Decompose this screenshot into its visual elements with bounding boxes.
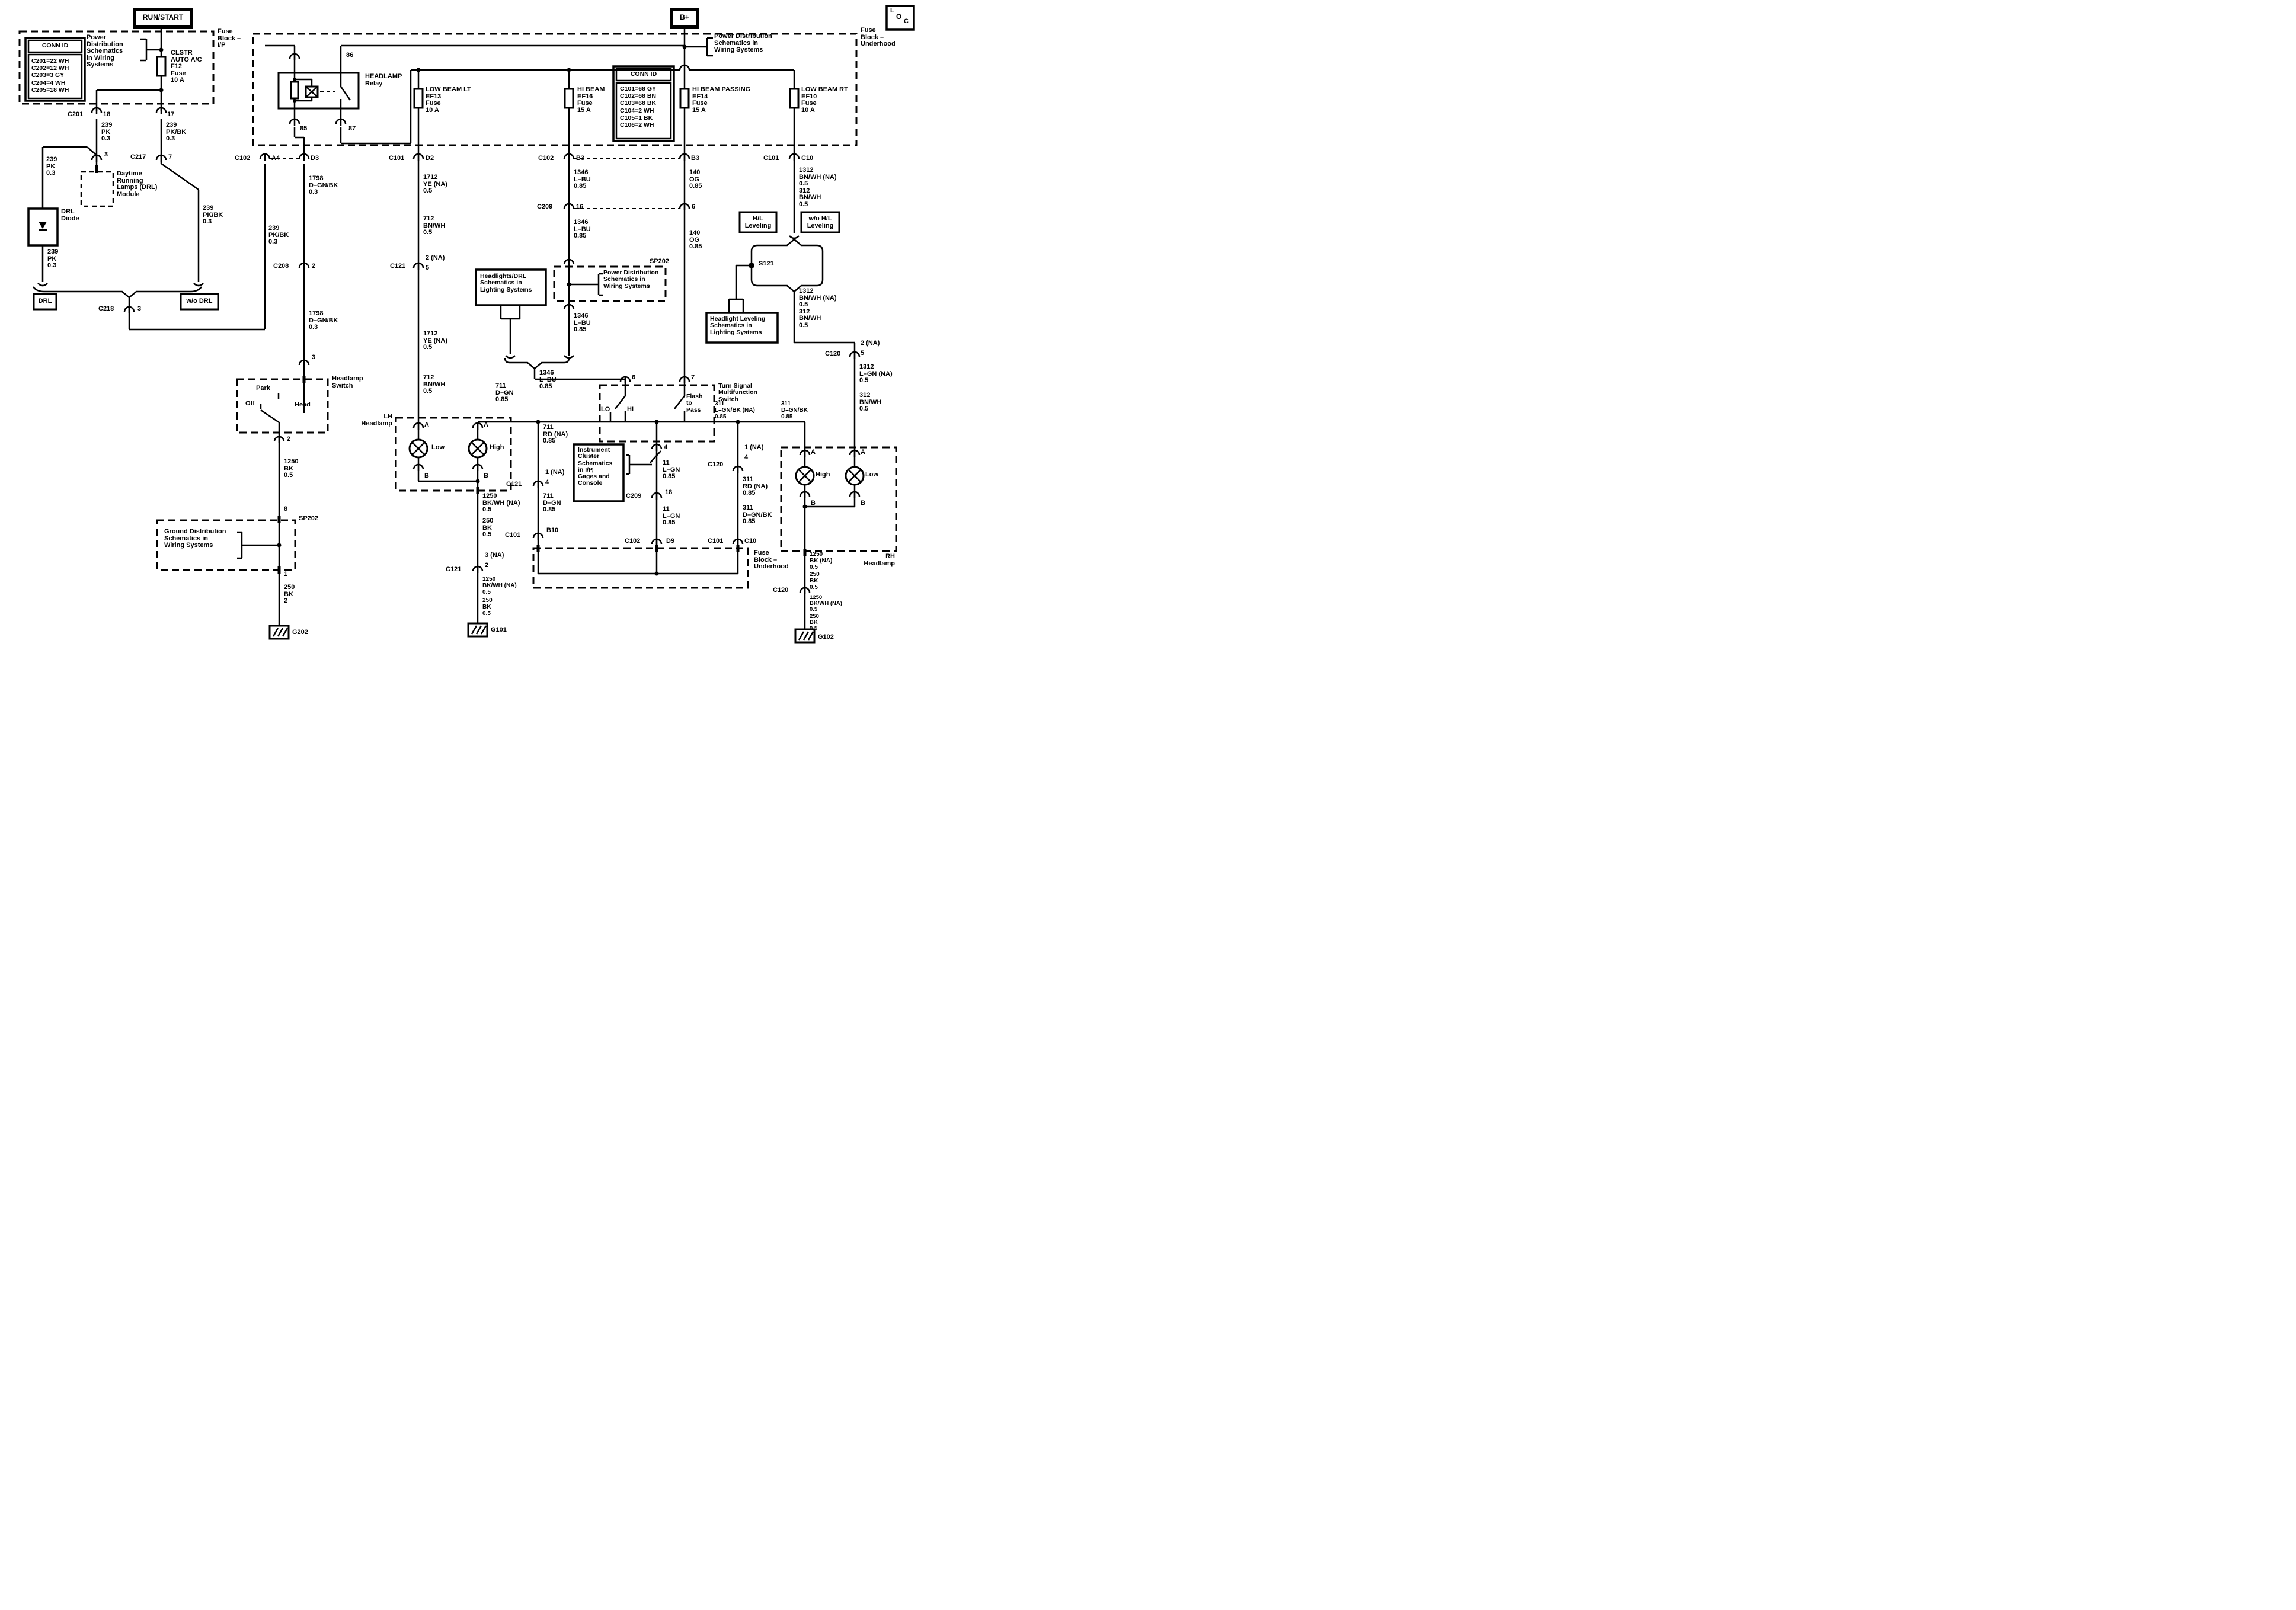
loc-letter-c: C <box>904 18 909 25</box>
wire-311-dgnbk-a: 311 D–GN/BK 0.85 <box>781 401 808 420</box>
wire-1346-d: 1346 L–BU 0.85 <box>539 370 557 391</box>
wire-250-bk-2: 250 BK 2 <box>284 584 295 605</box>
pin-c10-b: C10 <box>744 538 756 545</box>
pin-2na: 2 (NA) <box>426 255 445 262</box>
pin-a-rh-low: A <box>861 449 865 456</box>
junction-dot <box>736 420 740 424</box>
conn-c121-a: C121 <box>390 263 405 270</box>
junction-dot <box>476 479 480 484</box>
switch-flash-to-pass: Flash to Pass <box>686 393 702 414</box>
wire-1712-b: 1712 YE (NA) 0.5 <box>423 331 447 351</box>
pin-a-lh-high: A <box>484 422 488 429</box>
headlamp-switch-label: Headlamp Switch <box>332 376 363 389</box>
conn-c218: C218 <box>98 306 114 313</box>
pin-d9: D9 <box>666 538 674 545</box>
junction-dot <box>655 420 659 424</box>
wire-712-b: 712 BN/WH 0.5 <box>423 375 445 395</box>
conn-id-left-title: CONN ID <box>25 43 85 49</box>
pin-18: 18 <box>103 111 110 119</box>
pin-3b: 3 <box>137 306 141 313</box>
rh-high-label: High <box>816 472 830 479</box>
junction-dot <box>293 99 296 103</box>
conn-c209-a: C209 <box>537 204 552 211</box>
junction-dot <box>567 283 571 287</box>
switch-park: Park <box>256 385 270 392</box>
wo-drl-option-label: w/o DRL <box>181 298 218 305</box>
rh-headlamp-box <box>781 447 896 551</box>
wire-711-dgn-a: 711 D–GN 0.85 <box>495 383 514 404</box>
wire-1346-c: 1346 L–BU 0.85 <box>574 313 591 334</box>
pin-16: 16 <box>576 204 583 211</box>
wire-1346-a: 1346 L–BU 0.85 <box>574 169 591 190</box>
junction-dot <box>803 505 807 509</box>
pin-8: 8 <box>284 506 287 513</box>
wire-239-pkbk-c: 239 PK/BK 0.3 <box>268 225 289 246</box>
pin-2na2: 2 (NA) <box>861 340 880 347</box>
fuse-ef14 <box>680 89 689 108</box>
junction-dot <box>683 45 687 49</box>
conn-c120-c: C120 <box>773 587 788 594</box>
pin-d3: D3 <box>311 155 319 162</box>
pin-87: 87 <box>348 126 356 133</box>
splice-sp202-a: SP202 <box>299 516 318 523</box>
wire-1250-bkwh-c: 1250 BK/WH (NA) 0.5 <box>810 595 842 613</box>
loc-letter-l: L <box>890 8 894 15</box>
fuse-ef14-label: HI BEAM PASSING EF14 Fuse 15 A <box>692 87 750 114</box>
wire-1250-bkwh-b: 1250 BK/WH (NA) 0.5 <box>482 576 517 596</box>
clstr-fuse-label: CLSTR AUTO A/C F12 Fuse 10 A <box>171 50 202 84</box>
fuse-block-ip-label: Fuse Block – I/P <box>218 28 241 49</box>
wire-1312-lgn: 1312 L–GN (NA) 0.5 <box>859 364 893 385</box>
pin-b3-a: B3 <box>576 155 584 162</box>
drl-module-box-g <box>81 172 113 206</box>
wire-1250-bk: 1250 BK 0.5 <box>284 459 298 479</box>
s121-splice-dot <box>749 263 754 268</box>
pin-5: 5 <box>426 265 429 272</box>
conn-c121-c: C121 <box>446 566 461 574</box>
junction-dot <box>567 68 571 72</box>
conn-c208: C208 <box>273 263 289 270</box>
drl-module-box <box>81 172 113 206</box>
wire-1798-b: 1798 D–GN/BK 0.3 <box>309 311 338 331</box>
switch-hi: HI <box>627 406 634 414</box>
fuse-ef16 <box>565 89 573 108</box>
pin-2b: 2 <box>287 436 290 443</box>
pin-85: 85 <box>300 126 307 133</box>
pin-4c: 4 <box>545 479 549 486</box>
pin-a-rh-high: A <box>811 449 816 456</box>
wire-1712-a: 1712 YE (NA) 0.5 <box>423 174 447 195</box>
headlight-leveling-ref: Headlight Leveling Schematics in Lightin… <box>710 316 765 336</box>
pin-1na2: 1 (NA) <box>545 469 564 476</box>
wire-11-lgn-b: 11 L–GN 0.85 <box>663 506 680 527</box>
conn-c101-a: C101 <box>389 155 404 162</box>
instrument-cluster-ref: Instrument Cluster Schematics in I/P, Ga… <box>578 447 612 487</box>
pin-c10: C10 <box>801 155 813 162</box>
ground-hatch-set <box>273 626 813 640</box>
ground-g102: G102 <box>818 634 834 641</box>
junction-dot <box>655 572 659 576</box>
b-plus-label: B+ <box>671 14 698 21</box>
conn-c101-d: C101 <box>505 532 520 539</box>
pin-7b: 7 <box>691 375 695 382</box>
pin-3c: 3 <box>312 354 315 361</box>
pin-b-rh-low: B <box>861 500 865 507</box>
relay-coil-resistor <box>291 82 298 98</box>
pin-a4: A4 <box>271 155 280 162</box>
wire-239-pk-a: 239 PK 0.3 <box>101 122 112 143</box>
conn-id-right-rows: C101=68 GY C102=68 BN C103=68 BK C104=2 … <box>620 85 656 129</box>
fuse-ef13-label: LOW BEAM LT EF13 Fuse 10 A <box>426 87 471 114</box>
ground-g101: G101 <box>491 627 507 634</box>
pin-17: 17 <box>167 111 174 119</box>
conn-c120-b: C120 <box>825 351 840 358</box>
ground-symbols <box>270 623 814 642</box>
headlights-drl-ref: Headlights/DRL Schematics in Lighting Sy… <box>480 273 532 293</box>
fuse-clstr <box>157 57 165 76</box>
junction-dot <box>159 88 164 92</box>
pin-2c: 2 <box>485 562 488 569</box>
solid-boxes <box>25 6 914 501</box>
wire-711-rd: 711 RD (NA) 0.85 <box>543 424 568 445</box>
pin-2: 2 <box>312 263 315 270</box>
pin-1: 1 <box>284 571 287 578</box>
wire-712-a: 712 BN/WH 0.5 <box>423 216 445 236</box>
wire-250-bk-b: 250 BK 0.5 <box>482 597 493 617</box>
wire-250-bk-d: 250 BK 0.5 <box>810 614 819 632</box>
fuse-ef10 <box>790 89 798 108</box>
rh-headlamp-label: RH Headlamp <box>844 553 895 567</box>
fuse-block-underhood-bottom-label: Fuse Block – Underhood <box>754 550 789 571</box>
junction-dot <box>417 68 421 72</box>
wire-140-b: 140 OG 0.85 <box>689 230 702 251</box>
pin-b10: B10 <box>546 527 558 534</box>
junction-dot <box>536 420 541 424</box>
wire-711-dgn-b: 711 D–GN 0.85 <box>543 493 561 514</box>
loc-letter-o: O <box>896 13 901 21</box>
wo-hl-leveling-option-label: w/o H/L Leveling <box>801 216 839 229</box>
pin-6b: 6 <box>632 375 635 382</box>
wire-1250-bkna: 1250 BK (NA) 0.5 <box>810 551 832 571</box>
run-start-label: RUN/START <box>135 14 191 21</box>
junction-dot <box>293 78 296 81</box>
wiring-diagram-page: RUN/START B+ L O C Fuse Block – I/P Fuse… <box>0 0 918 648</box>
pin-3: 3 <box>104 152 108 159</box>
wire-311-rd: 311 RD (NA) 0.85 <box>743 476 768 497</box>
conn-c120-a: C120 <box>708 462 723 469</box>
junction-dot <box>159 48 164 52</box>
drl-option-label: DRL <box>34 298 56 305</box>
pin-4a: 4 <box>664 444 667 452</box>
power-dist-ref-sp202: Power Distribution Schematics in Wiring … <box>603 270 658 290</box>
wire-250-bk-a: 250 BK 0.5 <box>482 518 493 539</box>
lh-high-label: High <box>490 444 504 452</box>
lh-low-label: Low <box>431 444 445 452</box>
ground-hatches <box>273 626 813 640</box>
wire-239-pk-c: 239 PK 0.3 <box>47 249 58 270</box>
conn-id-right-title: CONN ID <box>616 71 671 78</box>
pin-6a: 6 <box>692 204 695 211</box>
turn-signal-switch-label: Turn Signal Multifunction Switch <box>718 383 757 403</box>
diode-symbol <box>39 222 47 230</box>
fuse-ef13 <box>414 89 423 108</box>
rh-low-label: Low <box>865 472 878 479</box>
conn-c102-a: C102 <box>235 155 250 162</box>
drl-diode-label: DRL Diode <box>61 209 79 222</box>
pin-d2: D2 <box>426 155 434 162</box>
wire-239-pkbk-a: 239 PK/BK 0.3 <box>166 122 186 143</box>
wire-239-pkbk-b: 239 PK/BK 0.3 <box>203 205 223 226</box>
wire-140-a: 140 OG 0.85 <box>689 169 702 190</box>
wire-250-bk-c: 250 BK 0.5 <box>810 571 820 591</box>
pin-3na: 3 (NA) <box>485 552 504 559</box>
pin-18b: 18 <box>665 489 672 497</box>
wire-1312-b: 1312 BN/WH (NA) 0.5 312 BN/WH 0.5 <box>799 288 837 329</box>
pin-1na: 1 (NA) <box>744 444 763 452</box>
edge-stub-set <box>97 165 805 574</box>
switch-lo: LO <box>601 406 610 414</box>
conn-id-left-rows: C201=22 WH C202=12 WH C203=3 GY C204=4 W… <box>31 57 69 94</box>
power-dist-ref-ip: Power Distribution Schematics in Wiring … <box>87 34 123 69</box>
switch-off: Off <box>245 401 255 408</box>
junction-dot <box>277 543 282 548</box>
wire-1798-a: 1798 D–GN/BK 0.3 <box>309 175 338 196</box>
fuse-ef10-label: LOW BEAM RT EF10 Fuse 10 A <box>801 87 848 114</box>
splice-s121: S121 <box>759 261 774 268</box>
wire-1250-bkwh-a: 1250 BK/WH (NA) 0.5 <box>482 493 520 514</box>
diode-triangle <box>39 222 47 229</box>
fuse-block-underhood-top-label: Fuse Block – Underhood <box>861 27 896 48</box>
fuse-ef16-label: HI BEAM EF16 Fuse 15 A <box>577 87 605 114</box>
wire-1312-a: 1312 BN/WH (NA) 0.5 312 BN/WH 0.5 <box>799 167 837 209</box>
wire-11-lgn-a: 11 L–GN 0.85 <box>663 460 680 481</box>
pin-b-lh-low: B <box>424 473 429 480</box>
conn-c201: C201 <box>68 111 83 119</box>
hl-leveling-option-label: H/L Leveling <box>740 216 776 229</box>
pin-b-rh-high: B <box>811 500 816 507</box>
conn-c217: C217 <box>130 154 146 161</box>
wire-1346-b: 1346 L–BU 0.85 <box>574 219 591 240</box>
wire-311-dgnbk-b: 311 D–GN/BK 0.85 <box>743 505 772 526</box>
relay-label: HEADLAMP Relay <box>365 73 402 87</box>
pin-b-lh-high: B <box>484 473 488 480</box>
wire-311-lgnbk: 311 L–GN/BK (NA) 0.85 <box>715 401 755 420</box>
wire-239-pk-b: 239 PK 0.3 <box>46 156 57 177</box>
pin-5b: 5 <box>861 350 864 357</box>
pin-86: 86 <box>346 52 353 59</box>
drl-module-label: Daytime Running Lamps (DRL) Module <box>117 171 157 198</box>
pin-a-lh-low: A <box>424 422 429 429</box>
wire-312-bnwh: 312 BN/WH 0.5 <box>859 392 881 413</box>
conn-c121-b: C121 <box>506 481 522 488</box>
conn-c101-c: C101 <box>708 538 723 545</box>
switch-head: Head <box>295 402 311 409</box>
conn-c102-b: C102 <box>538 155 554 162</box>
conn-c102-c: C102 <box>625 538 640 545</box>
pin-7: 7 <box>168 154 172 161</box>
edge-stubs <box>97 165 805 574</box>
fuse-block-underhood-bottom-box <box>533 548 748 588</box>
ground-g202: G202 <box>292 629 308 636</box>
power-dist-ref-underhood: Power Distribution Schematics in Wiring … <box>714 33 772 54</box>
lh-headlamp-label: LH Headlamp <box>346 414 392 427</box>
conn-c209-b: C209 <box>626 493 641 500</box>
splice-sp202-b: SP202 <box>650 258 669 265</box>
ground-dist-ref: Ground Distribution Schematics in Wiring… <box>164 529 226 549</box>
conn-c101-b: C101 <box>763 155 779 162</box>
pin-4b: 4 <box>744 454 748 462</box>
pin-b3-b: B3 <box>691 155 699 162</box>
